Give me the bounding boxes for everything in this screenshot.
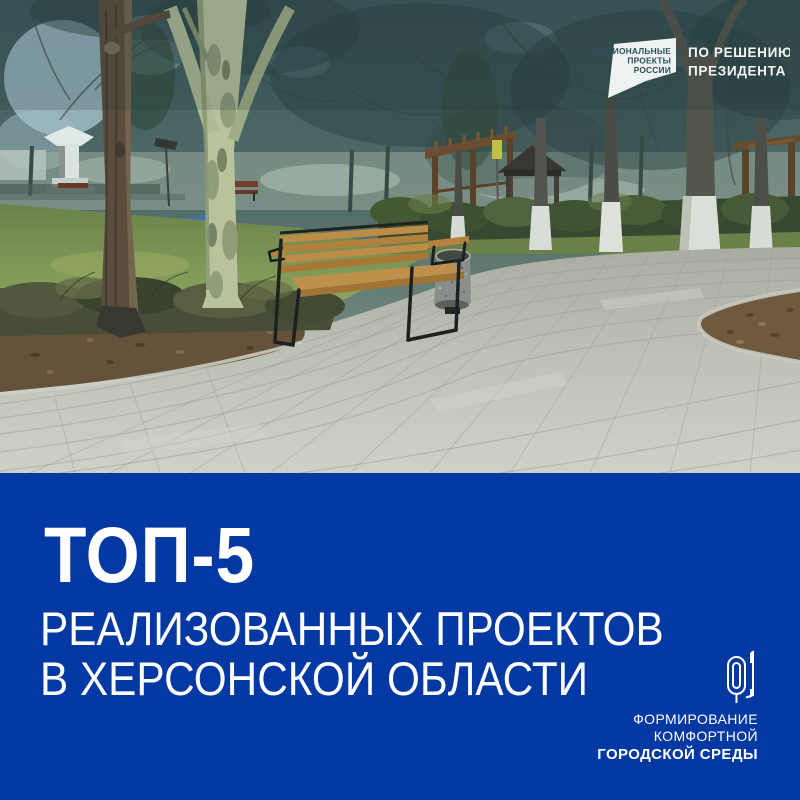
blue-banner: ТОП-5 РЕАЛИЗОВАННЫХ ПРОЕКТОВ В ХЕРСОНСКО…: [0, 473, 800, 800]
fkgs-text-line: КОМФОРТНОЙ: [597, 728, 758, 745]
fkgs-logo-icon: [721, 649, 755, 705]
fkgs-text-line: ГОРОДСКОЙ СРЕДЫ: [597, 745, 758, 764]
tagline-line: ПО РЕШЕНИЮ: [688, 45, 790, 60]
flag-text-line: НАЦИОНАЛЬНЫЕ: [595, 46, 671, 56]
social-poster: НАЦИОНАЛЬНЫЕ ПРОЕКТЫ РОССИИ ПО РЕШЕНИЮ П…: [0, 0, 800, 800]
national-projects-logo: НАЦИОНАЛЬНЫЕ ПРОЕКТЫ РОССИИ ПО РЕШЕНИЮ П…: [595, 28, 790, 112]
subtitle-line-1: РЕАЛИЗОВАННЫХ ПРОЕКТОВ: [40, 601, 664, 656]
flag-text-line: РОССИИ: [634, 65, 671, 75]
fkgs-text-line: ФОРМИРОВАНИЕ: [597, 711, 758, 728]
page-title: ТОП-5: [44, 509, 255, 601]
park-photo: НАЦИОНАЛЬНЫЕ ПРОЕКТЫ РОССИИ ПО РЕШЕНИЮ П…: [0, 0, 800, 473]
fkgs-logo: ФОРМИРОВАНИЕ КОМФОРТНОЙ ГОРОДСКОЙ СРЕДЫ: [597, 649, 758, 764]
subtitle-line-2: В ХЕРСОНСКОЙ ОБЛАСТИ: [40, 651, 588, 706]
tagline-line: ПРЕЗИДЕНТА: [688, 64, 786, 79]
flag-text-line: ПРОЕКТЫ: [627, 56, 671, 66]
